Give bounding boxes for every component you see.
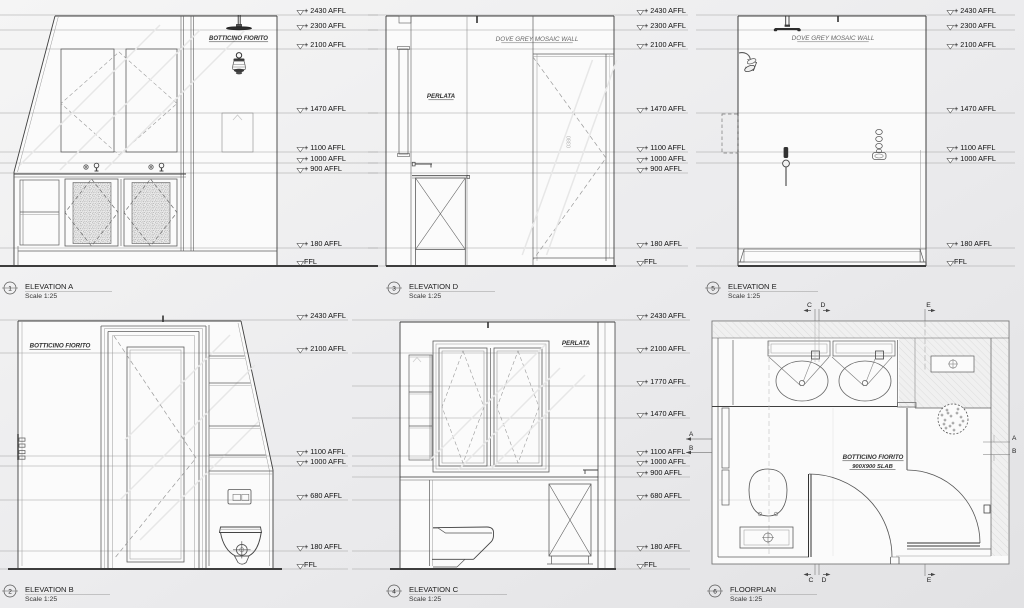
svg-text:Scale 1:25: Scale 1:25 [25,596,57,603]
svg-text:FFL: FFL [954,257,967,266]
svg-text:FFL: FFL [644,257,657,266]
svg-text:0380: 0380 [567,136,573,148]
svg-text:+ 1470 AFFL: + 1470 AFFL [644,104,686,113]
svg-text:BOTTICINO FIORITO: BOTTICINO FIORITO [843,454,904,461]
svg-text:+ 680 AFFL: + 680 AFFL [304,491,342,500]
svg-text:+ 1100 AFFL: + 1100 AFFL [304,143,345,152]
svg-text:DOVE GREY MOSAIC WALL: DOVE GREY MOSAIC WALL [496,36,579,43]
svg-text:+ 1000 AFFL: + 1000 AFFL [644,154,686,163]
svg-text:FFL: FFL [304,257,317,266]
svg-text:Scale 1:25: Scale 1:25 [409,596,441,603]
svg-text:+ 1470 AFFL: + 1470 AFFL [954,104,996,113]
svg-text:Scale 1:25: Scale 1:25 [730,596,762,603]
svg-text:FFL: FFL [304,560,317,569]
svg-text:ELEVATION D: ELEVATION D [409,282,459,291]
svg-text:+ 2430 AFFL: + 2430 AFFL [954,6,996,15]
svg-text:+ 2430 AFFL: + 2430 AFFL [644,311,686,320]
svg-text:4: 4 [392,588,396,595]
svg-text:+ 1000 AFFL: + 1000 AFFL [954,154,996,163]
svg-text:DOVE GREY MOSAIC WALL: DOVE GREY MOSAIC WALL [792,35,875,42]
svg-text:+ 1100 AFFL: + 1100 AFFL [644,143,685,152]
svg-text:+ 2430 AFFL: + 2430 AFFL [304,311,346,320]
svg-text:+ 680 AFFL: + 680 AFFL [644,491,682,500]
svg-text:3: 3 [392,285,396,292]
svg-text:+ 1100 AFFL: + 1100 AFFL [304,447,345,456]
svg-text:B: B [689,445,693,452]
svg-text:ELEVATION A: ELEVATION A [25,282,74,291]
svg-text:C: C [809,577,814,584]
svg-text:+ 2100 AFFL: + 2100 AFFL [304,40,346,49]
svg-text:+ 2100 AFFL: + 2100 AFFL [304,344,346,353]
svg-text:+ 1000 AFFL: + 1000 AFFL [304,154,346,163]
svg-text:+ 900 AFFL: + 900 AFFL [644,468,682,477]
svg-text:C: C [807,302,812,309]
svg-text:+ 2300 AFFL: + 2300 AFFL [304,21,346,30]
svg-text:+ 1000 AFFL: + 1000 AFFL [644,457,686,466]
svg-text:+ 900 AFFL: + 900 AFFL [304,164,342,173]
svg-text:FLOORPLAN: FLOORPLAN [730,585,776,594]
svg-text:+ 1000 AFFL: + 1000 AFFL [304,457,346,466]
svg-text:E: E [927,577,932,584]
svg-text:PERLATA: PERLATA [562,340,591,347]
svg-text:E: E [926,302,931,309]
svg-text:5: 5 [711,285,715,292]
svg-text:D: D [822,577,827,584]
svg-text:+ 1100 AFFL: + 1100 AFFL [954,143,995,152]
svg-text:BOTTICINO FIORITO: BOTTICINO FIORITO [30,343,91,350]
svg-text:1: 1 [8,285,12,292]
svg-text:A: A [689,431,694,438]
svg-text:BOTTICINO FIORITO: BOTTICINO FIORITO [209,36,268,42]
svg-text:+ 180 AFFL: + 180 AFFL [644,239,682,248]
svg-text:+ 180 AFFL: + 180 AFFL [304,542,342,551]
svg-text:ELEVATION B: ELEVATION B [25,585,74,594]
svg-text:2: 2 [8,588,12,595]
svg-text:+ 1100 AFFL: + 1100 AFFL [644,447,685,456]
svg-text:6: 6 [713,588,717,595]
svg-text:Scale 1:25: Scale 1:25 [25,293,57,300]
svg-text:ELEVATION E: ELEVATION E [728,282,777,291]
svg-text:Scale 1:25: Scale 1:25 [728,293,760,300]
svg-text:+ 1770 AFFL: + 1770 AFFL [644,377,686,386]
svg-text:+ 2100 AFFL: + 2100 AFFL [644,40,686,49]
svg-text:+ 1470 AFFL: + 1470 AFFL [304,104,346,113]
svg-text:+ 2430 AFFL: + 2430 AFFL [644,6,686,15]
svg-text:+ 2100 AFFL: + 2100 AFFL [644,344,686,353]
svg-text:900X900 SLAB: 900X900 SLAB [852,464,893,470]
svg-text:+ 180 AFFL: + 180 AFFL [644,542,682,551]
svg-text:PERLATA: PERLATA [427,93,456,100]
svg-text:+ 180 AFFL: + 180 AFFL [304,239,342,248]
svg-text:ELEVATION C: ELEVATION C [409,585,459,594]
svg-text:+ 180 AFFL: + 180 AFFL [954,239,992,248]
svg-text:FFL: FFL [644,560,657,569]
svg-text:+ 2300 AFFL: + 2300 AFFL [954,21,996,30]
svg-text:B: B [1012,448,1017,455]
svg-text:+ 2430 AFFL: + 2430 AFFL [304,6,346,15]
svg-text:D: D [821,302,826,309]
svg-text:+ 900 AFFL: + 900 AFFL [644,164,682,173]
svg-text:+ 2100 AFFL: + 2100 AFFL [954,40,996,49]
svg-text:A: A [1012,435,1017,442]
svg-text:+ 1470 AFFL: + 1470 AFFL [644,409,686,418]
svg-text:+ 2300 AFFL: + 2300 AFFL [644,21,686,30]
svg-text:Scale 1:25: Scale 1:25 [409,293,441,300]
